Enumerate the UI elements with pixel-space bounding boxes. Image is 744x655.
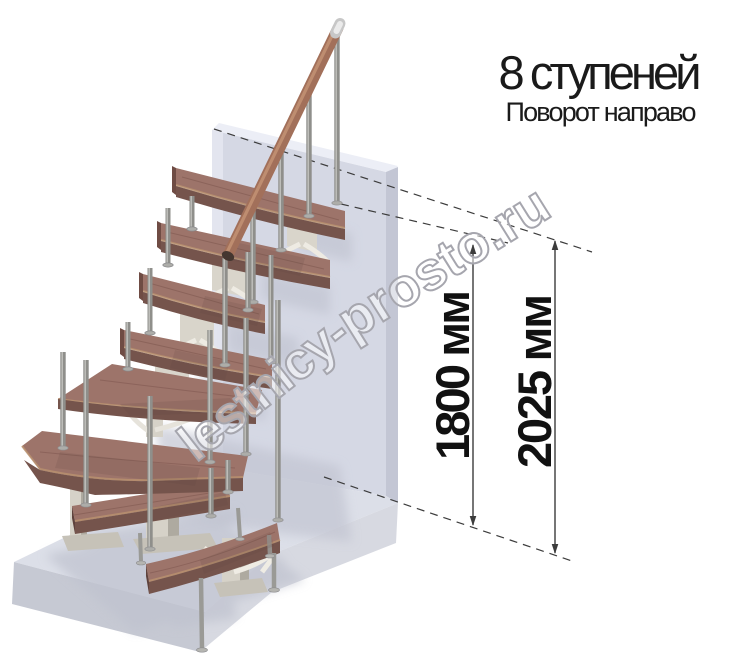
svg-text:Поворот направо: Поворот направо bbox=[506, 97, 697, 127]
svg-text:1800 мм: 1800 мм bbox=[426, 290, 479, 460]
svg-text:2025 мм: 2025 мм bbox=[508, 294, 561, 468]
svg-text:8 ступеней: 8 ступеней bbox=[499, 46, 702, 99]
